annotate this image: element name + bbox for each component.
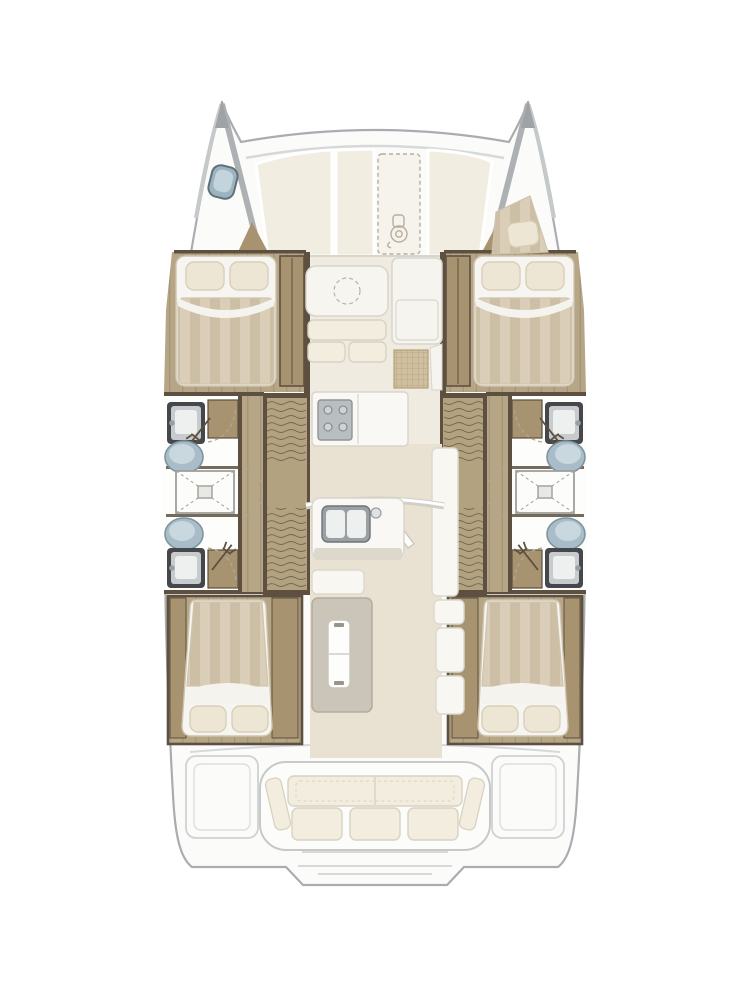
forward-head-sink: [167, 402, 205, 444]
sink-basin: [326, 510, 345, 538]
salon-table: [306, 266, 388, 316]
companionway-stairs: [263, 393, 311, 595]
tall-locker: [432, 448, 458, 596]
bench-seat-cushion: [292, 808, 342, 840]
hull-corridor-floor: [242, 396, 264, 592]
shower-wall-bottom: [166, 514, 240, 517]
sofa-seat: [308, 342, 345, 362]
windlass-locker: [378, 154, 420, 254]
floor-plan-canvas: Catamaran interior floor plan: [0, 0, 750, 1000]
cabinet-right-top: [434, 600, 464, 624]
aft-toilet: [165, 518, 203, 550]
woven-grid-mat: [394, 350, 428, 388]
foredeck: [256, 149, 492, 256]
aft-wardrobe-right: [272, 598, 298, 738]
bench-seat-cushion: [350, 808, 400, 840]
cockpit: [260, 762, 490, 850]
foredeck-panel-right: [428, 150, 492, 256]
forward-bed-pillow: [186, 262, 224, 290]
forward-cabin-bulkhead: [174, 250, 306, 254]
aft-deck-locker: [186, 756, 258, 838]
faucet-icon: [169, 565, 175, 571]
salon: [306, 256, 464, 758]
foredeck-panel-left: [256, 150, 332, 256]
bathroom-wall-inner: [238, 396, 242, 592]
aft-bed-duvet: [187, 602, 268, 686]
sink-basin: [347, 510, 366, 538]
aft-cabin: [166, 596, 302, 744]
bathroom-wall-top: [164, 392, 264, 396]
faucet-icon: [371, 508, 381, 518]
grid-mat-side-panel: [430, 344, 442, 390]
foredeck-panel-mid: [336, 149, 374, 256]
stair-flight-upper: [267, 398, 307, 462]
crew-berth-pillow: [506, 220, 539, 248]
side-console: [392, 258, 442, 344]
faucet-icon: [169, 420, 175, 426]
shower-stall: [176, 471, 234, 513]
cooler-handle: [334, 681, 344, 685]
forward-cabin: [164, 250, 310, 394]
cabinet-right-bottom: [436, 676, 464, 714]
stove: [318, 400, 352, 440]
forward-toilet: [165, 441, 203, 473]
shower-drain: [198, 486, 212, 498]
cabinet-right-mid: [436, 628, 464, 672]
forward-bed-pillow: [230, 262, 268, 290]
stair-landing: [267, 462, 307, 508]
sofa-back: [308, 320, 386, 340]
counter-lower-band: [314, 548, 402, 560]
cabinet-above-island: [312, 570, 364, 594]
cooler-handle: [334, 623, 344, 627]
stair-flight-lower: [267, 508, 307, 590]
catamaran-floor-plan: Catamaran interior floor plan: [0, 0, 750, 1000]
aft-head-sink: [167, 548, 205, 588]
bench-seat-cushion: [408, 808, 458, 840]
sofa-seat: [349, 342, 386, 362]
aft-bed-pillow: [190, 706, 226, 732]
aft-bed-pillow: [232, 706, 268, 732]
